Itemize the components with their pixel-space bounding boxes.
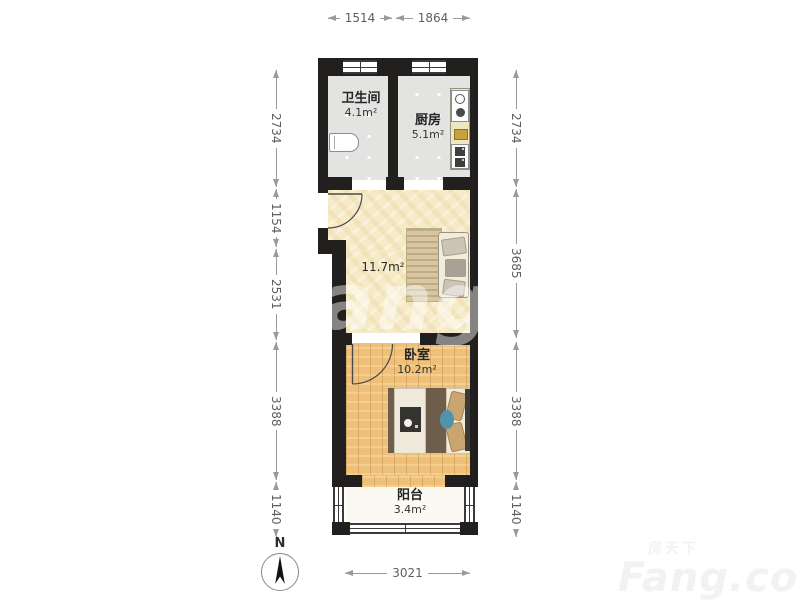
balcony-window-right <box>464 487 475 522</box>
room-name: 卧室 <box>397 349 437 364</box>
round-cushion <box>440 410 454 429</box>
room-area: 4.1m² <box>341 107 380 120</box>
living-room-rug <box>406 228 442 302</box>
balcony-window-bottom <box>350 523 460 534</box>
room-area: 11.7m² <box>361 261 404 275</box>
room-name: 卫生间 <box>341 92 380 107</box>
wall-segment <box>420 333 478 345</box>
bedroom-label: 卧室 10.2m² <box>397 349 437 377</box>
dim-left-4: 1140 <box>268 482 284 537</box>
balcony-label: 阳台 3.4m² <box>394 489 427 517</box>
burner-icon <box>456 108 465 117</box>
wall-segment <box>386 177 404 190</box>
dim-top-0: 1514 <box>328 11 392 25</box>
brand-watermark: 房天下 Fang.com <box>618 538 800 598</box>
sink-basin <box>455 158 465 167</box>
room-area: 5.1m² <box>412 129 445 142</box>
bed <box>388 388 470 453</box>
bathroom-window <box>343 60 377 74</box>
north-label: N <box>252 536 308 551</box>
cooktop <box>451 90 469 122</box>
wall-segment <box>445 475 478 487</box>
balcony-window-left <box>333 487 344 522</box>
north-arrow-icon <box>272 556 288 587</box>
sink-basin <box>455 147 465 156</box>
wall-segment <box>318 58 478 76</box>
dim-bottom-0: 3021 <box>345 566 470 580</box>
cutting-board <box>454 129 468 140</box>
brand-watermark-en: Fang.com <box>618 558 800 598</box>
wall-segment <box>332 333 352 345</box>
burner-icon <box>455 94 465 104</box>
wall-segment <box>388 58 398 190</box>
wall-segment <box>470 58 478 487</box>
kitchen-counter <box>450 88 470 170</box>
wall-segment <box>318 177 352 190</box>
bathtub <box>329 133 359 152</box>
north-compass: N <box>252 536 308 591</box>
dim-left-2: 2531 <box>268 249 284 340</box>
dim-top-1: 1864 <box>396 11 470 25</box>
kitchen-label: 厨房 5.1m² <box>412 114 445 142</box>
dim-right-0: 2734 <box>508 70 524 187</box>
wall-segment <box>332 475 362 487</box>
wall-segment <box>443 177 478 190</box>
dim-left-1: 1154 <box>268 189 284 247</box>
room-name: 厨房 <box>412 114 445 129</box>
dim-left-0: 2734 <box>268 70 284 187</box>
bed-tray <box>400 407 421 432</box>
sink <box>451 144 469 169</box>
wall-segment <box>460 522 478 535</box>
wall-segment <box>332 252 346 487</box>
bathroom-label: 卫生间 4.1m² <box>341 92 380 120</box>
wall-segment <box>332 522 350 535</box>
living-room-label: 11.7m² <box>361 261 404 275</box>
dim-right-2: 3388 <box>508 342 524 480</box>
dim-right-3: 1140 <box>508 482 524 537</box>
brand-watermark-cn: 房天下 <box>648 538 800 558</box>
kitchen-window <box>412 60 446 74</box>
sofa-pillow <box>441 236 467 256</box>
sofa-cushion <box>445 259 466 277</box>
balcony-doorway-floor <box>362 475 445 487</box>
dim-right-1: 3685 <box>508 189 524 338</box>
room-name: 阳台 <box>394 489 427 504</box>
compass-ring <box>261 553 299 591</box>
wall-segment <box>318 58 328 193</box>
sofa <box>438 232 469 298</box>
dim-left-3: 3388 <box>268 342 284 480</box>
room-area: 3.4m² <box>394 504 427 517</box>
room-area: 10.2m² <box>397 364 437 377</box>
sofa-pillow <box>442 279 466 298</box>
